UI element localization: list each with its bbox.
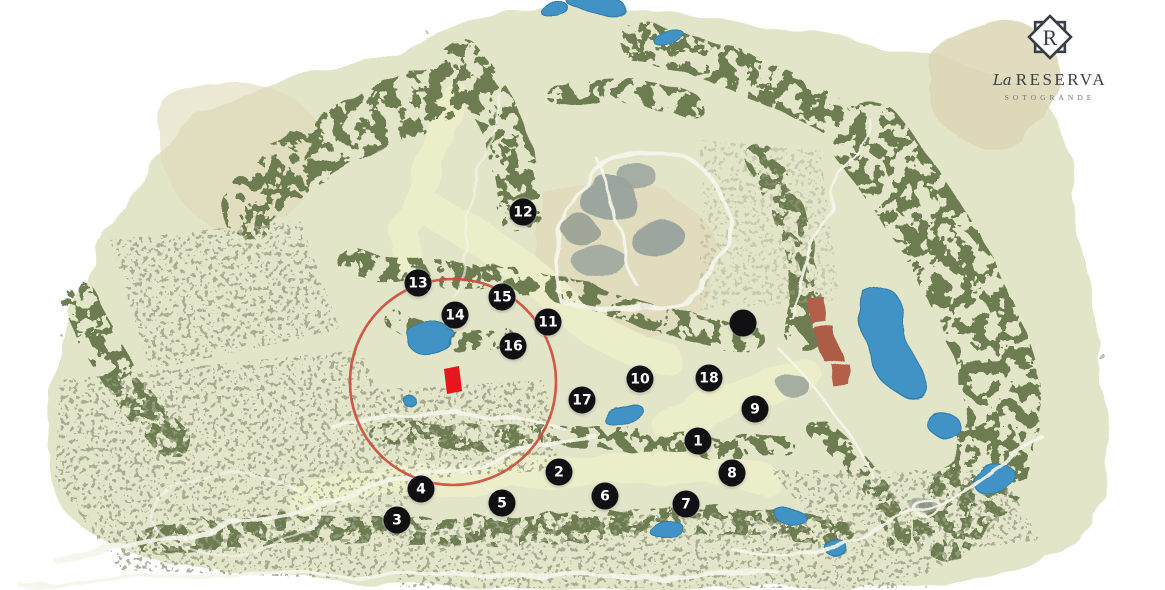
hole-marker-8[interactable]: 8 [719, 460, 746, 487]
hole-marker-11[interactable]: 11 [535, 309, 562, 336]
hole-marker-3[interactable]: 3 [384, 507, 411, 534]
hole-marker-label: 16 [503, 339, 522, 353]
hole-marker-label: 10 [630, 372, 649, 386]
hole-marker-label: 5 [497, 496, 507, 510]
logo-subtitle: SOTOGRANDE [975, 93, 1125, 102]
hole-marker-label: 18 [699, 371, 718, 385]
eight-point-star-icon: R [1017, 6, 1083, 68]
hole-marker-2[interactable]: 2 [546, 459, 573, 486]
hole-marker-label: 2 [554, 465, 564, 479]
hole-marker-label: 6 [600, 489, 610, 503]
hole-marker-9[interactable]: 9 [742, 396, 769, 423]
hole-marker-5[interactable]: 5 [489, 490, 516, 517]
masterplan-canvas: 1 2 3 4 5 6 7 8 9 10 11 12 13 14 15 16 1… [0, 0, 1165, 590]
logo-name-text: RESERVA [1016, 70, 1107, 89]
hole-marker-label: 8 [727, 466, 737, 480]
hole-marker-label: 12 [513, 205, 532, 219]
hole-marker-13[interactable]: 13 [405, 270, 432, 297]
logo-monogram: R [1043, 25, 1058, 50]
hole-marker-label: 3 [392, 513, 402, 527]
hole-marker-label: 13 [408, 276, 427, 290]
hole-marker-1[interactable]: 1 [685, 428, 712, 455]
logo-prefix: La [993, 71, 1012, 89]
hole-marker-12[interactable]: 12 [510, 199, 537, 226]
hole-marker-label: 1 [693, 434, 703, 448]
hole-marker-10[interactable]: 10 [627, 366, 654, 393]
hole-marker-label: 15 [492, 290, 511, 304]
hole-marker-14[interactable]: 14 [442, 302, 469, 329]
brand-logo: R LaRESERVA SOTOGRANDE [975, 6, 1125, 102]
hole-marker-label: 9 [750, 402, 760, 416]
hole-marker-4[interactable]: 4 [408, 476, 435, 503]
hole-marker-17[interactable]: 17 [569, 387, 596, 414]
hole-marker-18[interactable]: 18 [696, 365, 723, 392]
hole-marker-7[interactable]: 7 [673, 491, 700, 518]
hole-marker-label: 4 [416, 482, 426, 496]
hole-marker-label: 11 [538, 315, 557, 329]
selected-plot-marker[interactable] [444, 366, 462, 394]
hole-marker-15[interactable]: 15 [489, 284, 516, 311]
hole-marker-label: 17 [572, 393, 591, 407]
unlabeled-marker[interactable] [730, 310, 757, 337]
hole-marker-label: 7 [681, 497, 691, 511]
hole-marker-16[interactable]: 16 [500, 333, 527, 360]
hole-marker-6[interactable]: 6 [592, 483, 619, 510]
hole-marker-label: 14 [445, 308, 464, 322]
logo-name: LaRESERVA [975, 70, 1125, 90]
